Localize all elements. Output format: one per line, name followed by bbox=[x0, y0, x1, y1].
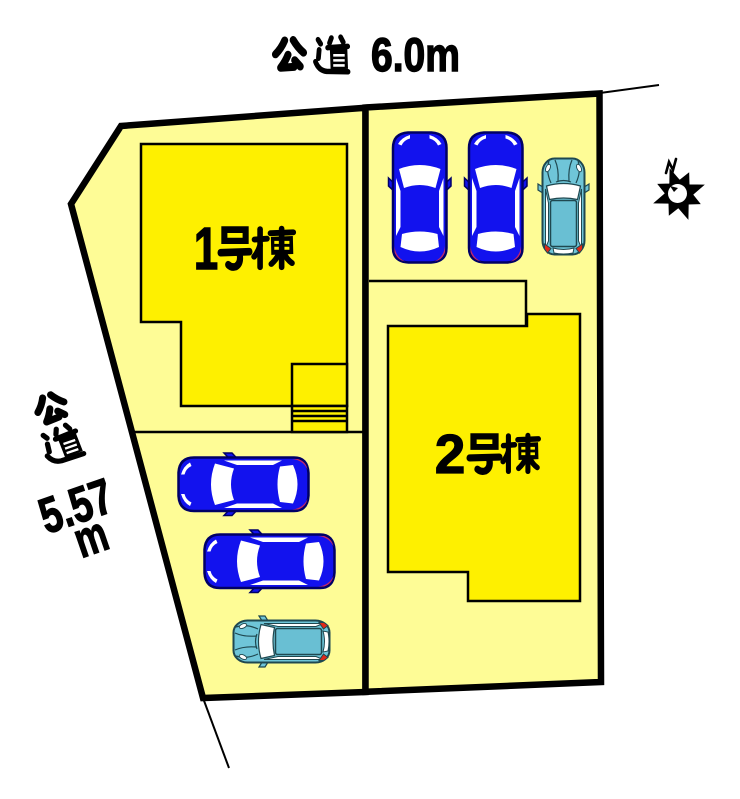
svg-text:6.0m: 6.0m bbox=[371, 28, 460, 81]
svg-text:1: 1 bbox=[194, 216, 218, 282]
svg-text:2: 2 bbox=[435, 423, 466, 485]
